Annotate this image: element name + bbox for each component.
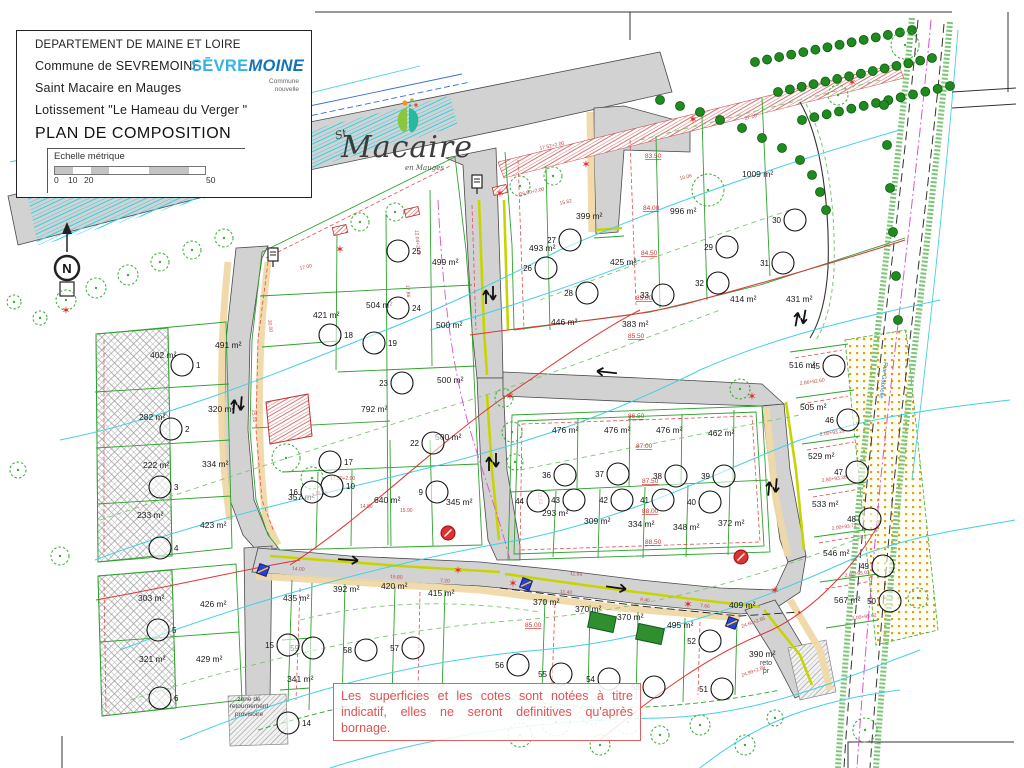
lot-circle	[607, 463, 629, 485]
area-label: 383 m²	[622, 319, 649, 329]
hedge-icon	[856, 69, 865, 78]
hedge-icon	[835, 107, 844, 116]
lot-number: 16	[289, 488, 298, 497]
lot-number: 3	[174, 483, 179, 492]
dimension-label: 25.00	[250, 410, 257, 423]
lot-number: 41	[640, 496, 649, 505]
lot-circle	[859, 508, 881, 530]
lot-number: 32	[695, 279, 704, 288]
lot-circle	[711, 678, 733, 700]
corner-star-icon: ✶	[688, 114, 697, 126]
lot-circle	[550, 663, 572, 685]
corner-star-icon: ✶	[770, 585, 779, 597]
turnaround-right-label: retopr	[748, 660, 784, 676]
lot-circle	[149, 537, 171, 559]
corner-star-icon: ✶	[335, 244, 344, 256]
hedge-icon	[778, 144, 787, 153]
area-label: 420 m²	[381, 581, 408, 591]
lot-number: 47	[834, 468, 843, 477]
lot-circle	[784, 209, 806, 231]
lot-circle	[527, 490, 549, 512]
area-label: 370 m²	[617, 612, 644, 622]
department-line: DEPARTEMENT DE MAINE ET LOIRE	[35, 39, 311, 51]
lot-number: 22	[410, 439, 419, 448]
corner-star-icon: ✶	[61, 305, 70, 317]
lot-number: 24	[412, 304, 421, 313]
one-way-arrow-icon	[597, 367, 618, 377]
scale-ticks: 0 10 20 50	[54, 175, 239, 185]
area-label: 429 m²	[196, 654, 223, 664]
area-label: 567 m²	[834, 595, 861, 605]
lot-number: 14	[302, 719, 311, 728]
elevation-label: 88.50	[645, 539, 662, 546]
lot-circle	[149, 687, 171, 709]
title-block: DEPARTEMENT DE MAINE ET LOIRE Commune de…	[16, 30, 312, 198]
lot-number: 27	[547, 236, 556, 245]
area-label: 431 m²	[786, 294, 813, 304]
middle-road	[503, 372, 784, 406]
note-text: Les superficies et les cotes sont notées…	[341, 688, 633, 736]
scale-label: Echelle métrique	[54, 151, 239, 162]
area-label: 348 m²	[673, 522, 700, 532]
hedge-icon	[809, 80, 818, 89]
lot-circle	[563, 489, 585, 511]
elevation-label: 83.50	[645, 153, 662, 160]
lot-number: 10	[346, 482, 355, 491]
lot-circle	[402, 637, 424, 659]
dimension-label: 9.40	[640, 597, 651, 604]
hedge-icon	[811, 45, 820, 54]
two-way-arrow-icon	[793, 308, 809, 328]
lot-number: 15	[265, 641, 274, 650]
lot-number: 56	[495, 661, 504, 670]
lot-number: 2	[185, 425, 190, 434]
hedge-icon	[909, 90, 918, 99]
lot-circle	[319, 324, 341, 346]
hedge-icon	[775, 53, 784, 62]
dimension-label: 11.40	[560, 589, 573, 596]
hedge-icon	[763, 55, 772, 64]
lot-circle	[716, 236, 738, 258]
hedge-icon	[847, 104, 856, 113]
lot-circle	[699, 630, 721, 652]
lot-circle	[713, 465, 735, 487]
hedge-icon	[816, 188, 825, 197]
lot-circle	[302, 637, 324, 659]
lot-circle	[576, 282, 598, 304]
lot-number: 30	[772, 216, 781, 225]
lot-number: 44	[515, 497, 524, 506]
plan-title: PLAN DE COMPOSITION	[35, 125, 311, 143]
hedge-plot	[588, 611, 617, 632]
hedge-icon	[883, 30, 892, 39]
area-label: 415 m²	[428, 588, 455, 598]
dimension-label: 17.00	[299, 263, 313, 272]
corner-star-icon: ✶	[453, 565, 462, 577]
lot-number: 5	[172, 626, 177, 635]
lot-circle	[147, 619, 169, 641]
lot-circle	[363, 332, 385, 354]
hedge-icon	[656, 96, 665, 105]
lot-number: 48	[847, 515, 856, 524]
hedge-icon	[785, 85, 794, 94]
corner-star-icon: ✶	[508, 578, 517, 590]
area-label: 500 m²	[437, 375, 464, 385]
lot-number: 52	[687, 637, 696, 646]
corner-star-icon: ✶	[683, 599, 692, 611]
lot-number: 46	[825, 416, 834, 425]
existing-wall-icon	[332, 225, 347, 236]
north-label: N	[62, 261, 71, 276]
lot-number: 51	[699, 685, 708, 694]
area-label: 476 m²	[552, 425, 579, 435]
area-label: 499 m²	[432, 257, 459, 267]
lot-circle	[321, 475, 343, 497]
lotissement-line: Lotissement "Le Hameau du Verger "	[35, 103, 311, 117]
elevation-label: 87.00	[636, 443, 653, 450]
hedge-icon	[808, 171, 817, 180]
area-label: 1009 m²	[742, 169, 773, 179]
area-label: 321 m²	[139, 654, 166, 664]
hedge-icon	[716, 116, 725, 125]
lot-number: 17	[344, 458, 353, 467]
macaire-logo-sub: en Mauges	[405, 164, 444, 172]
hedge-icon	[821, 77, 830, 86]
hedge-icon	[810, 113, 819, 122]
lot-number: 26	[523, 264, 532, 273]
lot-circle	[652, 489, 674, 511]
area-label: 446 m²	[551, 317, 578, 327]
lot-circle	[772, 252, 794, 274]
area-label: 425 m²	[610, 257, 637, 267]
lot-circle	[171, 354, 193, 376]
lot-circle	[707, 272, 729, 294]
note-box: Les superficies et les cotes sont notées…	[333, 683, 641, 741]
lot-circle	[611, 489, 633, 511]
area-label: 399 m²	[576, 211, 603, 221]
lot-number: 28	[564, 289, 573, 298]
lot-number: 31	[760, 259, 769, 268]
lot-circle	[422, 432, 444, 454]
hedge-icon	[868, 67, 877, 76]
lot-circle	[301, 481, 323, 503]
lot-number: 50	[867, 597, 876, 606]
macaire-logo-icon	[385, 96, 431, 142]
area-label: 792 m²	[361, 404, 388, 414]
scale-bar	[54, 166, 206, 175]
area-label: 334 m²	[202, 459, 229, 469]
lot-number: 25	[412, 247, 421, 256]
lot-circle	[554, 464, 576, 486]
area-label: 414 m²	[730, 294, 757, 304]
lot-circle	[665, 465, 687, 487]
sevremoine-logo-part2: MOINE	[248, 57, 304, 75]
elevation-label: 85.00	[525, 622, 542, 629]
sevremoine-sub2: nouvelle	[191, 86, 299, 94]
dimension-label: 11.64	[570, 571, 583, 578]
hedge-icon	[676, 102, 685, 111]
area-label: 334 m²	[628, 519, 655, 529]
lot-circle	[355, 639, 377, 661]
lot-circle	[872, 555, 894, 577]
sevremoine-logo: SĒVREMOINE Commune nouvelle	[191, 57, 303, 94]
area-label: 426 m²	[200, 599, 227, 609]
area-label: 370 m²	[533, 597, 560, 607]
area-label: 345 m²	[446, 497, 473, 507]
hedge-icon	[796, 156, 805, 165]
elevation-label: 84.00	[643, 205, 660, 212]
lot-number: 9	[419, 488, 424, 497]
hedge-icon	[751, 58, 760, 67]
lot-circle	[507, 654, 529, 676]
area-label: 505 m²	[800, 402, 827, 412]
dimension-label: 7.66	[700, 603, 711, 610]
hedge-icon	[921, 87, 930, 96]
macaire-logo: St Macaire en Mauges	[333, 100, 461, 178]
dimension-label: 2.86+92.60	[799, 378, 825, 387]
dimension-label: 7.20	[440, 578, 450, 585]
hedge-icon	[904, 59, 913, 68]
hedge-icon	[894, 316, 903, 325]
corner-star-icon: ✶	[495, 188, 504, 200]
hedge-icon	[833, 74, 842, 83]
lot-circle	[387, 297, 409, 319]
area-label: 640 m²	[374, 495, 401, 505]
lot-number: 38	[653, 472, 662, 481]
lot-number: 1	[196, 361, 201, 370]
area-label: 491 m²	[215, 340, 242, 350]
hedge-icon	[859, 35, 868, 44]
lot-number: 45	[811, 362, 820, 371]
lot-number: 33	[640, 291, 649, 300]
dimension-label: 17.86	[404, 285, 411, 298]
dimension-label: 30.00	[266, 320, 274, 333]
lot-circle	[652, 284, 674, 306]
corner-star-icon: ✶	[505, 391, 514, 403]
plan-de-composition-page: N 17.0026.00+2.0015.6217.52+2.0030.0025.…	[0, 0, 1024, 768]
lot-circle	[426, 481, 448, 503]
hedge-icon	[822, 206, 831, 215]
lot-circle	[319, 451, 341, 473]
hedge-icon	[847, 38, 856, 47]
existing-building	[266, 394, 312, 444]
hedge-icon	[799, 48, 808, 57]
dimension-label: 26.00+2.00	[519, 186, 545, 198]
lot-number: 57	[390, 644, 399, 653]
lot-number: 49	[860, 562, 869, 571]
dimension-label: 10.06	[679, 173, 693, 182]
lot-number: 23	[379, 379, 388, 388]
hedge-icon	[738, 124, 747, 133]
dimension-label: 15.80	[390, 574, 403, 581]
area-label: 529 m²	[808, 451, 835, 461]
area-label: 435 m²	[283, 593, 310, 603]
area-label: 500 m²	[436, 320, 463, 330]
area-label: 495 m²	[667, 620, 694, 630]
dimension-label: 14.80	[360, 504, 373, 510]
area-label: 309 m²	[584, 516, 611, 526]
lot-circle	[823, 355, 845, 377]
hedge-plot	[636, 623, 665, 644]
area-label: 372 m²	[718, 518, 745, 528]
lot-circle	[879, 590, 901, 612]
area-label: 303 m²	[138, 593, 165, 603]
corner-star-icon: ✶	[847, 77, 856, 89]
area-label: 282 m²	[139, 412, 166, 422]
lot-circle	[846, 461, 868, 483]
area-label: 409 m²	[729, 600, 756, 610]
area-label: 423 m²	[200, 520, 227, 530]
hedge-icon	[872, 99, 881, 108]
hedge-icon	[916, 56, 925, 65]
hedge-icon	[859, 101, 868, 110]
lot-number: 19	[388, 339, 397, 348]
elevation-label: 86.50	[628, 413, 645, 420]
hedge-icon	[787, 50, 796, 59]
existing-wall-icon	[404, 207, 419, 218]
turnaround-left-label: zone deretournementprovisoire	[214, 696, 284, 718]
corner-star-icon: ✶	[747, 391, 756, 403]
hedge-icon	[880, 101, 889, 110]
hedge-icon	[797, 82, 806, 91]
hedge-icon	[933, 84, 942, 93]
hedge-icon	[896, 93, 905, 102]
lot-number: 40	[687, 498, 696, 507]
hedge-icon	[892, 272, 901, 281]
sevremoine-logo-part1: SĒVRE	[191, 57, 248, 75]
area-label: 546 m²	[823, 548, 850, 558]
hedge-icon	[928, 54, 937, 63]
lot-circle	[149, 476, 171, 498]
dimension-label: 2.00+93.29	[819, 429, 845, 438]
lot-number: 43	[551, 496, 560, 505]
area-label: 421 m²	[313, 310, 340, 320]
area-label: 390 m²	[749, 649, 776, 659]
lot-circle	[277, 634, 299, 656]
area-label: 320 m²	[208, 404, 235, 414]
hedge-icon	[886, 184, 895, 193]
lot-circle	[699, 491, 721, 513]
lot-circle	[643, 676, 665, 698]
area-label: 370 m²	[575, 604, 602, 614]
corner-star-icon: ✶	[581, 159, 590, 171]
lot-number: 37	[595, 470, 604, 479]
hedge-icon	[880, 64, 889, 73]
area-label: 996 m²	[670, 206, 697, 216]
hedge-icon	[883, 141, 892, 150]
dimension-label: 14.00	[292, 566, 305, 573]
hedge-icon	[822, 110, 831, 119]
elevation-label: 84.50	[641, 250, 658, 257]
area-label: 341 m²	[287, 674, 314, 684]
lot-number: 42	[599, 496, 608, 505]
hedge-icon	[774, 88, 783, 97]
lot-circle	[559, 229, 581, 251]
lot-circle	[387, 240, 409, 262]
lot-number: 36	[542, 471, 551, 480]
lot-number: 4	[174, 544, 179, 553]
lot-circle	[391, 372, 413, 394]
lot-number: 29	[704, 243, 713, 252]
hedge-icon	[946, 82, 955, 91]
lot-number: 6	[174, 694, 179, 703]
area-label: 392 m²	[333, 584, 360, 594]
lot-circle	[837, 409, 859, 431]
dimension-label: 15.62	[559, 198, 573, 207]
hedge-icon	[758, 134, 767, 143]
lot-circle	[535, 257, 557, 279]
area-label: 476 m²	[604, 425, 631, 435]
area-label: 222 m²	[143, 460, 170, 470]
lot-circle	[160, 418, 182, 440]
hedge-icon	[892, 61, 901, 70]
hedge-icon	[889, 228, 898, 237]
lot-number: 58	[343, 646, 352, 655]
area-label: 476 m²	[656, 425, 683, 435]
hedge-icon	[823, 43, 832, 52]
area-label: 293 m²	[542, 508, 569, 518]
area-label: 533 m²	[812, 499, 839, 509]
hedge-icon	[871, 33, 880, 42]
hedge-icon	[835, 40, 844, 49]
lot-number: 55	[538, 670, 547, 679]
sevremoine-sub1: Commune	[191, 78, 299, 86]
area-label: 462 m²	[708, 428, 735, 438]
lot-number: 39	[701, 472, 710, 481]
elevation-label: 85.50	[628, 333, 645, 340]
area-label: 233 m²	[137, 510, 164, 520]
scale-box: Echelle métrique 0 10 20 50	[47, 148, 245, 193]
hedge-icon	[798, 116, 807, 125]
lot-number: 18	[344, 331, 353, 340]
dimension-label: 15.90	[400, 508, 413, 514]
